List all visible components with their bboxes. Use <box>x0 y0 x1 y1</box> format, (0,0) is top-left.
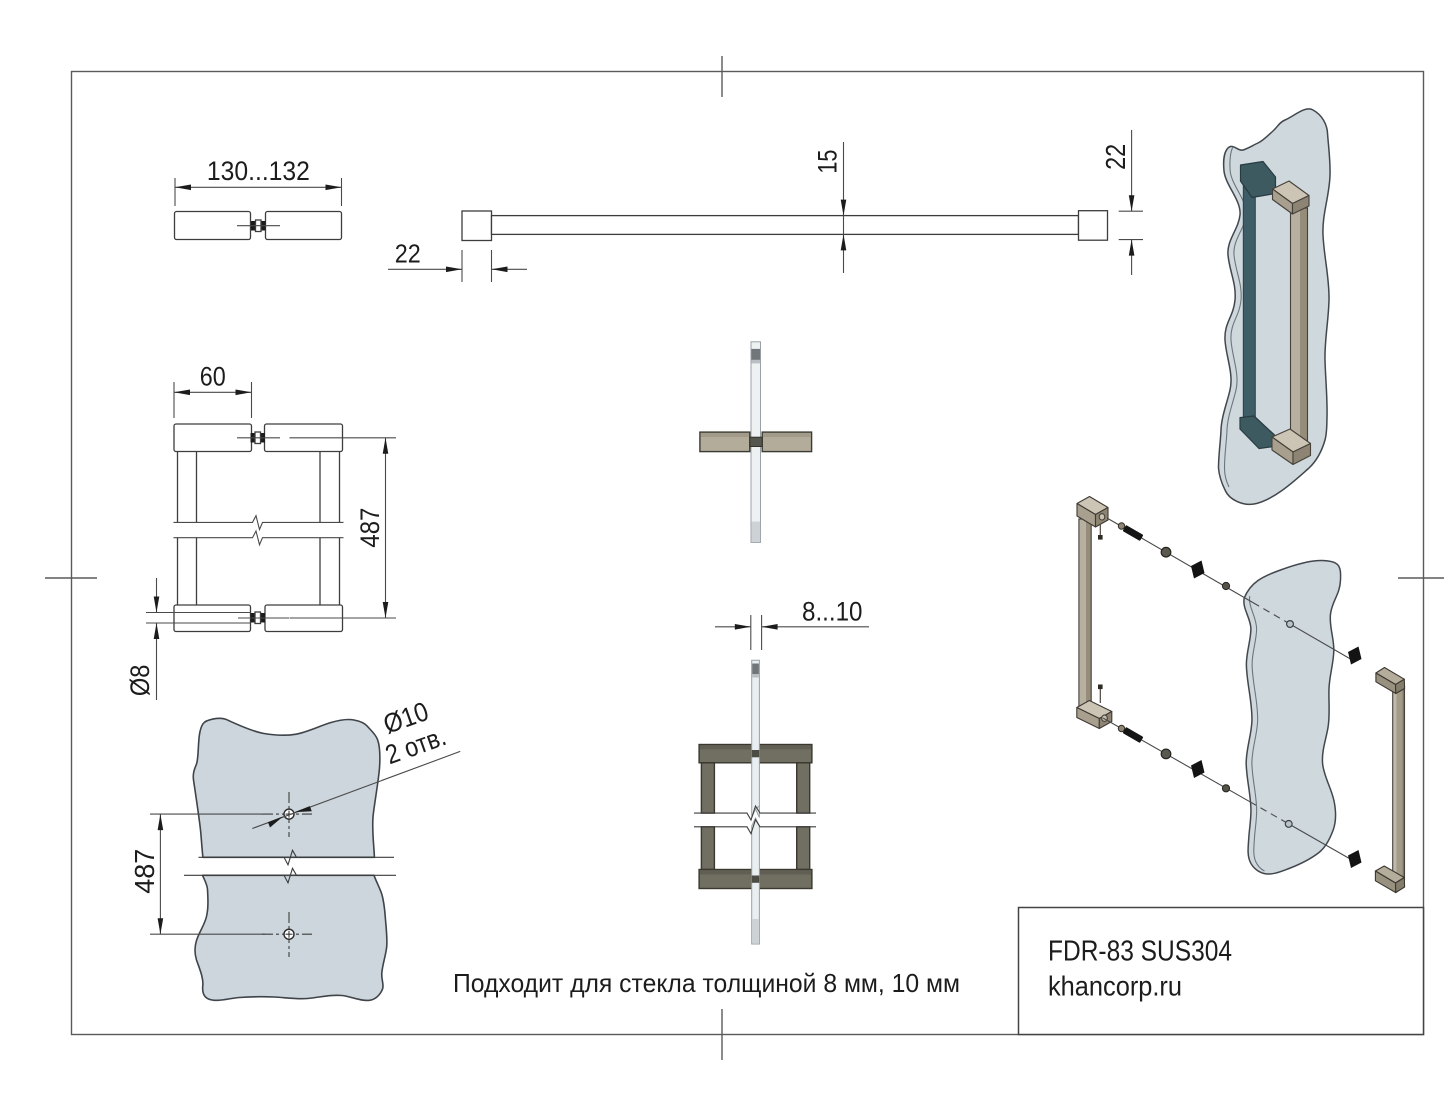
svg-text:487: 487 <box>129 849 160 894</box>
svg-text:8...10: 8...10 <box>802 597 863 627</box>
svg-text:487: 487 <box>355 508 385 548</box>
svg-text:130...132: 130...132 <box>207 156 310 186</box>
svg-text:22: 22 <box>1100 144 1131 170</box>
svg-text:FDR-83 SUS304: FDR-83 SUS304 <box>1048 936 1232 968</box>
svg-text:15: 15 <box>813 150 843 174</box>
svg-text:22: 22 <box>395 239 421 269</box>
svg-text:Ø8: Ø8 <box>125 665 155 697</box>
svg-text:khancorp.ru: khancorp.ru <box>1048 971 1182 1002</box>
svg-text:60: 60 <box>200 362 226 392</box>
svg-text:Подходит для стекла толщиной 8: Подходит для стекла толщиной 8 мм, 10 мм <box>453 968 960 998</box>
